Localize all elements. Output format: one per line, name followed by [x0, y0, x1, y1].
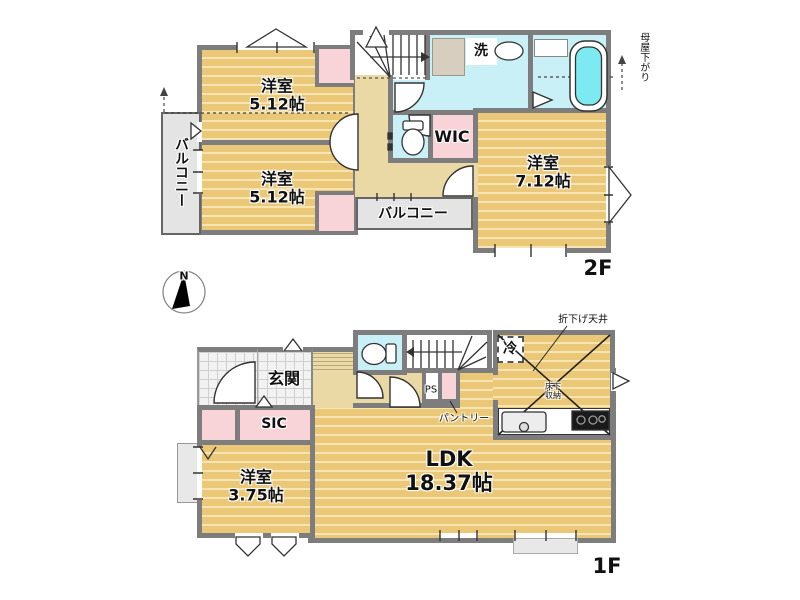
window-1f-ldk-bottom1 [440, 533, 478, 538]
stairs-1f [402, 330, 492, 373]
floor-storage-label: 床下収納 [545, 382, 561, 400]
terrace [513, 538, 578, 554]
bath-counter [534, 39, 568, 57]
vent-marker-r4-bottom2 [272, 537, 296, 556]
laundry-label: 洗 [474, 43, 488, 59]
compass-north-label: N [179, 271, 188, 284]
toilet-1f [353, 330, 407, 375]
toilet-2f [388, 110, 433, 163]
pantry [442, 373, 460, 403]
wall-hall-washroom [388, 75, 393, 113]
slope-arrow-right-icon [618, 55, 626, 64]
window-1f-r4-bottom1 [235, 533, 263, 538]
dropped-ceiling-label: 折下げ天井 [558, 314, 608, 326]
room-1f-bedroom-label: 洋室3.75帖 [228, 469, 283, 506]
window-1f-ldk-bottom2 [515, 533, 577, 538]
wic-label: WIC [434, 128, 469, 146]
pipe-space-label: PS [425, 384, 437, 396]
pantry-label: パントリー [439, 413, 490, 425]
window-2f-r1-top [237, 45, 315, 50]
room-2f-bedroom3-label: 洋室7.12帖 [515, 155, 570, 192]
sic-label: SIC [261, 416, 287, 432]
balcony-mid-label: バルコニー [378, 206, 448, 222]
bay-marker-2f-r3 [609, 167, 631, 223]
window-1f-r4-bottom2 [271, 533, 299, 538]
window-2f-stairs-top [363, 30, 389, 35]
kitchen-counter [498, 408, 610, 435]
washer-space [432, 38, 465, 76]
stairs-2f [350, 30, 435, 80]
room-2f-bedroom1-label: 洋室5.12帖 [249, 78, 304, 115]
slope-arrow-left-icon [160, 87, 168, 96]
window-2f-r3-right [606, 166, 611, 223]
wall-under-hall [353, 403, 460, 408]
closet-1f [197, 405, 240, 445]
balcony-left-label: バルコニー [173, 137, 189, 207]
hall-2f-lower [393, 163, 478, 197]
window-2f-r1-balcony [197, 122, 202, 142]
floor-plan: 洋室5.12帖 洋室5.12帖 洋室7.12帖 WIC 洗 バルコニー バルコニ… [0, 0, 800, 600]
genkan-label: 玄関 [268, 370, 300, 388]
washroom-2f-annex [393, 80, 430, 110]
porch [197, 347, 259, 408]
floor-1f-label: 1F [593, 554, 622, 578]
floor-2f-label: 2F [584, 256, 613, 280]
exterior-box-left [177, 443, 198, 503]
closet-2f-2 [315, 191, 358, 235]
vent-marker-r4-bottom1 [236, 537, 260, 556]
entrance-step [313, 353, 355, 373]
window-2f-r2-left [197, 150, 202, 194]
window-1f-r4-left [197, 447, 202, 500]
room-2f-bedroom2-label: 洋室5.12帖 [249, 171, 304, 208]
window-1f-ldk-right [611, 373, 616, 391]
refrigerator-label: 冷 [503, 341, 517, 357]
moya-sagari-label: 母屋下がり [637, 32, 649, 82]
window-1f-genkan-top [283, 347, 303, 352]
ldk-label: LDK18.37帖 [405, 447, 492, 495]
window-2f-r3-bottom [495, 248, 567, 253]
